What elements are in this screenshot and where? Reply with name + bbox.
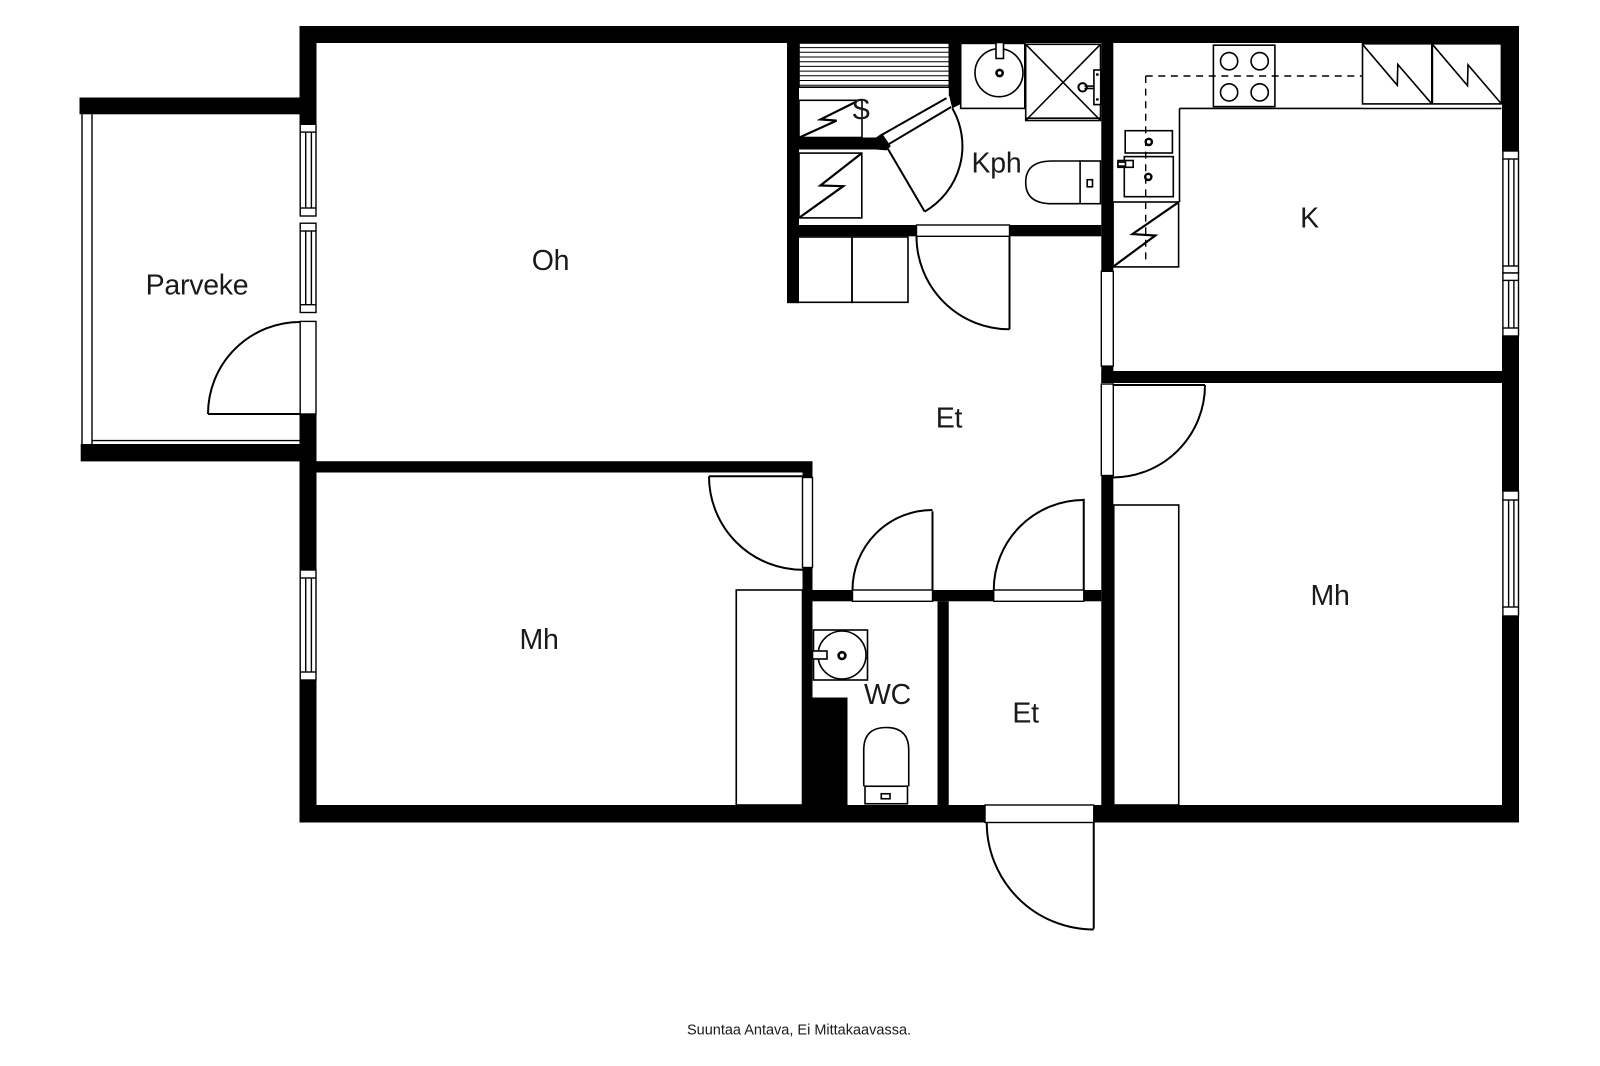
svg-text:Mh: Mh	[519, 624, 558, 656]
svg-text:Suuntaa Antava, Ei Mittakaavas: Suuntaa Antava, Ei Mittakaavassa.	[687, 1023, 911, 1039]
svg-text:S: S	[852, 94, 871, 126]
svg-text:K: K	[1300, 203, 1319, 235]
svg-text:Mh: Mh	[1310, 580, 1349, 612]
svg-text:Et: Et	[1012, 698, 1039, 730]
svg-text:WC: WC	[864, 679, 911, 711]
svg-text:Et: Et	[936, 403, 963, 435]
svg-text:Oh: Oh	[532, 245, 570, 277]
svg-text:Parveke: Parveke	[146, 270, 249, 302]
svg-text:Kph: Kph	[972, 148, 1022, 180]
